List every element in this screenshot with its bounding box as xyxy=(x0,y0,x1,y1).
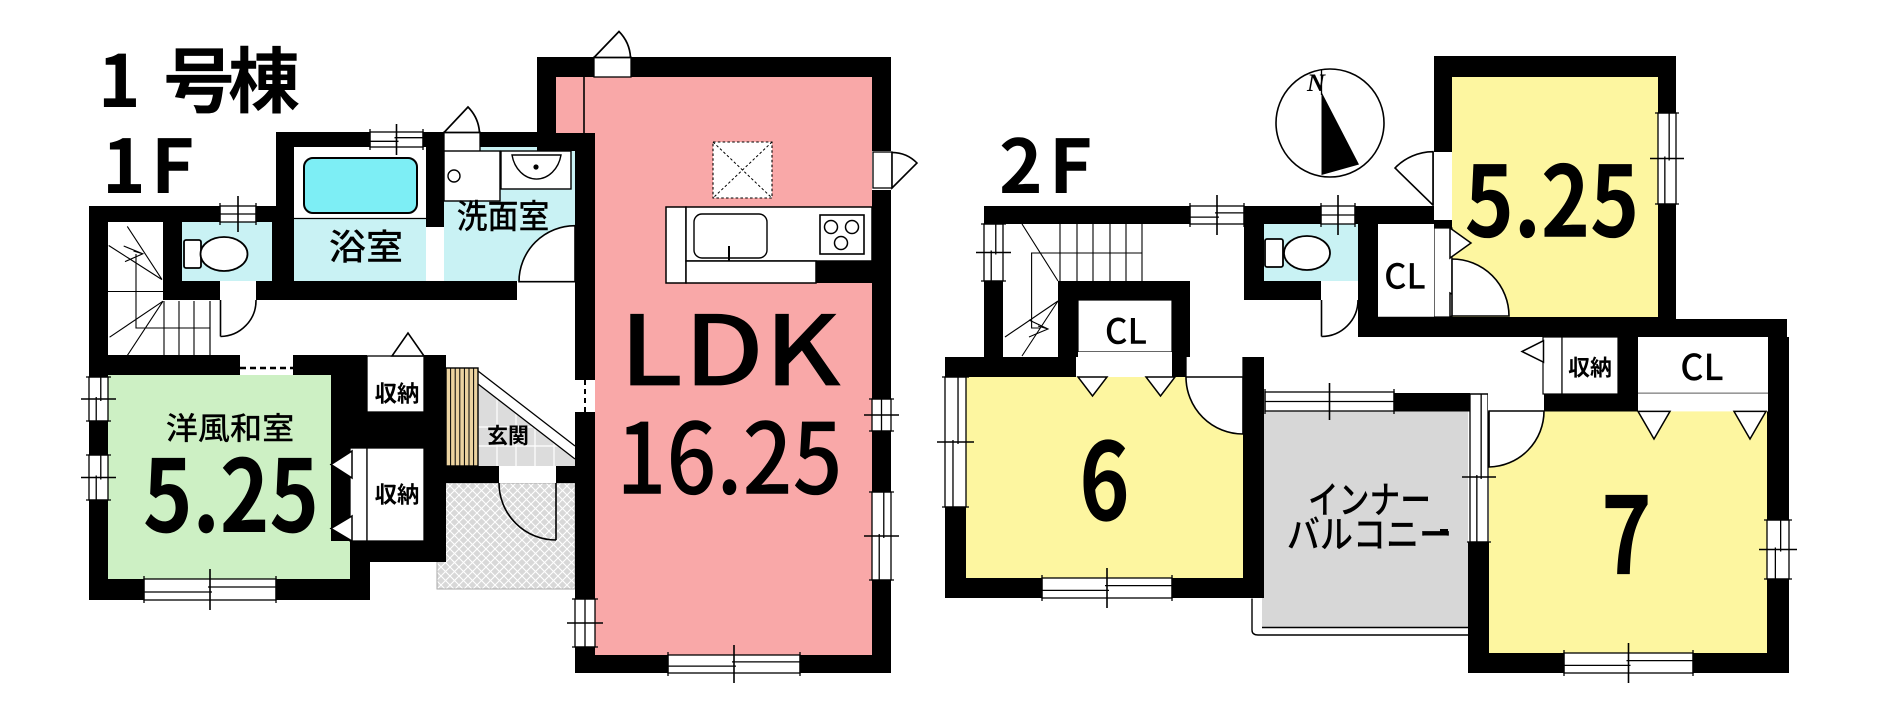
svg-text:N: N xyxy=(1306,70,1326,97)
